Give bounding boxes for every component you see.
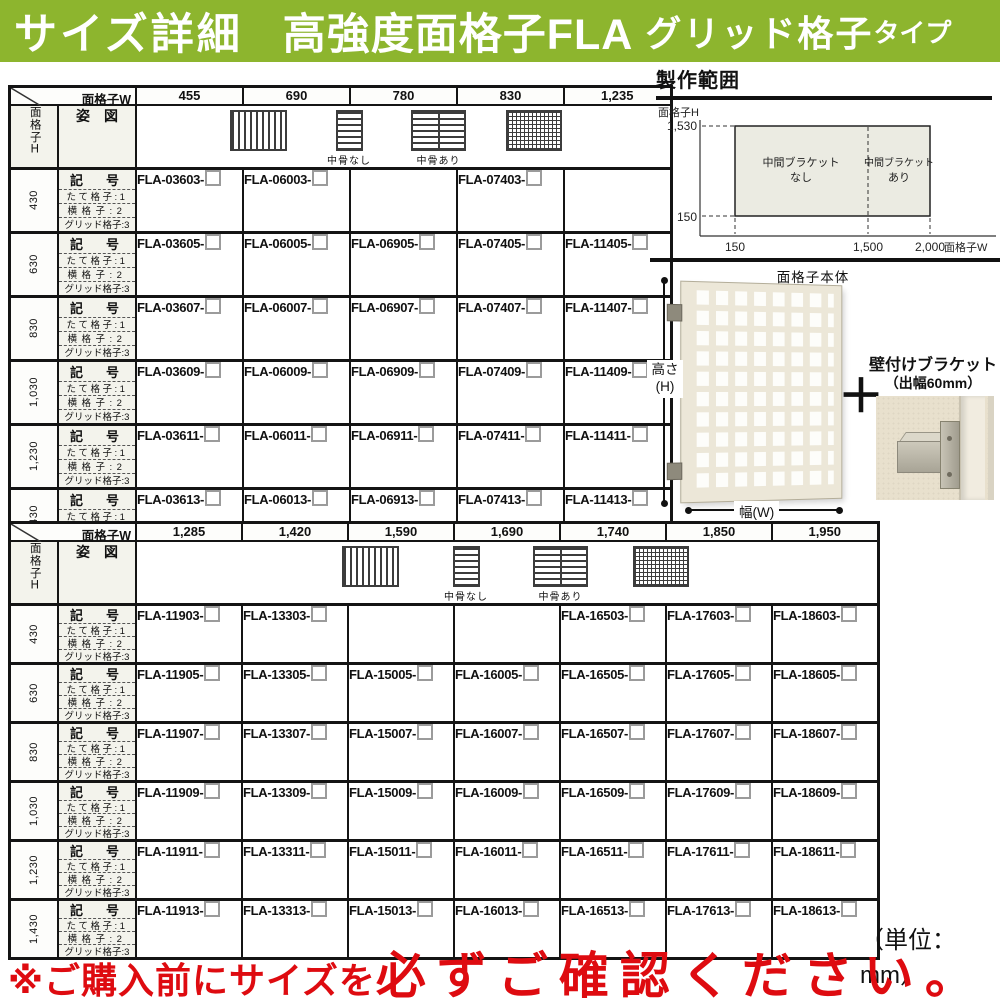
- product-code-cell: FLA-03611-: [136, 424, 243, 488]
- product-code: FLA-16011-: [455, 844, 521, 859]
- color-code-checkbox: [632, 298, 648, 314]
- kigo-label: 記 号: [59, 665, 135, 682]
- production-zone: [735, 126, 930, 216]
- color-code-checkbox: [522, 842, 538, 858]
- lattice-type-label: グリッド格子:3: [59, 217, 135, 231]
- row-height-cell: 430: [10, 604, 59, 663]
- color-code-checkbox: [628, 842, 644, 858]
- product-code-cell: FLA-13307-: [242, 722, 348, 781]
- color-code-checkbox: [417, 901, 433, 917]
- product-code-cell: FLA-16007-: [454, 722, 560, 781]
- product-code: FLA-11409-: [565, 364, 631, 379]
- size-row: 1,030記 号たて格子:1横格子:2グリッド格子:3FLA-11909-FLA…: [10, 781, 879, 840]
- with-midrail-figure: 中骨あり: [411, 106, 466, 167]
- product-code-cell: FLA-18609-: [772, 781, 878, 840]
- lattice-type-label: 横格子:2: [59, 813, 135, 826]
- color-code-checkbox: [632, 426, 648, 442]
- product-code-cell: FLA-03603-: [136, 168, 243, 232]
- product-code: FLA-07411-: [458, 428, 524, 443]
- kigo-label: 記 号: [59, 298, 135, 317]
- product-code: FLA-06909-: [351, 364, 418, 379]
- product-code: FLA-11913-: [137, 903, 203, 918]
- size-table-small-widths: 面格子W4556907808301,235面格子H姿 図中骨なし中骨あり430記…: [8, 85, 673, 554]
- color-code-checkbox: [735, 665, 751, 681]
- row-height-value: 1,230: [28, 854, 40, 884]
- product-code: FLA-03605-: [137, 236, 204, 251]
- product-code: FLA-16007-: [455, 726, 522, 741]
- product-type: グリッド格子: [645, 5, 873, 57]
- warning-emphasis: 必ずご確認ください。: [376, 936, 986, 1008]
- product-code: FLA-13311-: [243, 844, 309, 859]
- color-code-checkbox: [419, 234, 435, 250]
- appearance-row: 面格子H姿 図中骨なし中骨あり: [10, 541, 879, 605]
- appearance-figures-cell: 中骨なし中骨あり: [136, 105, 671, 169]
- product-code: FLA-11411-: [565, 428, 631, 443]
- vertical-lattice-figure: [230, 106, 287, 151]
- width-header: 1,950: [772, 523, 878, 541]
- color-code-checkbox: [205, 298, 221, 314]
- height-label: 高さ: [647, 362, 683, 379]
- product-code: FLA-11907-: [137, 726, 203, 741]
- color-code-checkbox: [205, 362, 221, 378]
- product-code-cell: FLA-11907-: [136, 722, 242, 781]
- product-code-cell: FLA-06009-: [243, 360, 350, 424]
- product-code-cell: FLA-16511-: [560, 840, 666, 899]
- mount-bracket-top: [667, 304, 683, 322]
- gbars-pattern: [506, 110, 562, 151]
- hbars-pattern: [336, 110, 363, 151]
- product-code: FLA-03603-: [137, 172, 204, 187]
- lattice-type-label: 横格子:2: [59, 636, 135, 649]
- product-code-cell: FLA-18611-: [772, 840, 878, 899]
- size-row: 1,230記 号たて格子:1横格子:2グリッド格子:3FLA-11911-FLA…: [10, 840, 879, 899]
- color-code-checkbox: [312, 362, 328, 378]
- product-code-cell: FLA-07405-: [457, 232, 564, 296]
- color-code-checkbox: [312, 298, 328, 314]
- appearance-label: 姿 図: [58, 105, 136, 169]
- color-code-checkbox: [841, 606, 857, 622]
- product-code-cell: FLA-18603-: [772, 604, 878, 663]
- lattice-type-label: たて格子:1: [59, 859, 135, 872]
- product-code-cell: FLA-06003-: [243, 168, 350, 232]
- product-code: FLA-06011-: [244, 428, 310, 443]
- product-code: FLA-13309-: [243, 785, 310, 800]
- grille-illustration: [681, 282, 841, 503]
- size-row: 1,030記 号たて格子:1横格子:2グリッド格子:3FLA-03609-FLA…: [10, 360, 672, 424]
- product-code-cell: FLA-13303-: [242, 604, 348, 663]
- product-code-cell: FLA-16509-: [560, 781, 666, 840]
- corner-cell: 面格子W: [10, 87, 137, 105]
- product-code: FLA-06907-: [351, 300, 418, 315]
- h-axis-label: 面格子H: [28, 106, 40, 157]
- product-code: FLA-17613-: [667, 903, 734, 918]
- color-code-checkbox: [841, 783, 857, 799]
- height-unit: (H): [647, 379, 683, 396]
- zone-right-line1: 中間ブラケット: [864, 156, 934, 169]
- product-code-cell: FLA-16005-: [454, 663, 560, 722]
- row-label-cell: 記 号たて格子:1横格子:2グリッド格子:3: [58, 722, 136, 781]
- y-max-tick: 1,530: [667, 119, 697, 133]
- width-header: 690: [243, 87, 350, 105]
- lattice-type-label: たて格子:1: [59, 741, 135, 754]
- product-code: FLA-06007-: [244, 300, 311, 315]
- color-code-checkbox: [312, 234, 328, 250]
- color-code-checkbox: [735, 724, 751, 740]
- product-code-cell: FLA-06005-: [243, 232, 350, 296]
- product-code: FLA-16013-: [455, 903, 522, 918]
- color-code-checkbox: [417, 724, 433, 740]
- product-code: FLA-07403-: [458, 172, 525, 187]
- color-code-checkbox: [523, 901, 539, 917]
- color-code-checkbox: [204, 842, 220, 858]
- color-code-checkbox: [841, 665, 857, 681]
- product-code-cell: FLA-07407-: [457, 296, 564, 360]
- row-label-cell: 記 号たて格子:1横格子:2グリッド格子:3: [58, 663, 136, 722]
- size-row: 1,230記 号たて格子:1横格子:2グリッド格子:3FLA-03611-FLA…: [10, 424, 672, 488]
- product-code: FLA-13303-: [243, 608, 310, 623]
- product-type-suffix: タイプ: [873, 13, 951, 50]
- figure-caption: 中骨あり: [417, 152, 461, 167]
- lattice-type-label: グリッド格子:3: [59, 409, 135, 423]
- row-label-cell: 記 号たて格子:1横格子:2グリッド格子:3: [58, 168, 136, 232]
- width-header: 830: [457, 87, 564, 105]
- x-axis-label: 面格子W: [944, 240, 988, 254]
- kigo-label: 記 号: [59, 842, 135, 859]
- vbars-pattern: [230, 110, 287, 151]
- product-code: FLA-03607-: [137, 300, 204, 315]
- product-code-cell: FLA-06911-: [350, 424, 457, 488]
- grille-frame-edge2: [988, 396, 994, 500]
- product-code: FLA-07413-: [458, 492, 525, 507]
- color-code-checkbox: [418, 426, 434, 442]
- row-height-value: 1,030: [28, 795, 40, 825]
- row-height-cell: 630: [10, 663, 59, 722]
- product-code: FLA-16511-: [561, 844, 627, 859]
- size-row: 830記 号たて格子:1横格子:2グリッド格子:3FLA-03607-FLA-0…: [10, 296, 672, 360]
- product-code: FLA-07409-: [458, 364, 525, 379]
- color-code-checkbox: [204, 724, 220, 740]
- row-height-value: 630: [28, 683, 40, 703]
- product-code: FLA-06911-: [351, 428, 417, 443]
- vertical-lattice-figure: [342, 542, 399, 587]
- bracket-depth: （出幅60mm）: [866, 375, 1000, 392]
- y-axis-label: 面格子H: [658, 105, 699, 119]
- color-code-checkbox: [632, 234, 648, 250]
- color-code-checkbox: [204, 665, 220, 681]
- row-height-value: 830: [28, 318, 40, 338]
- product-code: FLA-11413-: [565, 492, 631, 507]
- lattice-type-label: 横格子:2: [59, 395, 135, 409]
- color-code-checkbox: [312, 490, 328, 506]
- width-header-row: 面格子W4556907808301,235: [10, 87, 672, 105]
- dimension-dot: [661, 277, 668, 284]
- color-code-checkbox: [311, 901, 327, 917]
- lattice-type-label: たて格子:1: [59, 317, 135, 331]
- row-height-value: 430: [28, 190, 40, 210]
- page-title-bar: サイズ詳細 高強度面格子FLA グリッド格子 タイプ: [0, 0, 1000, 62]
- kigo-label: 記 号: [59, 234, 135, 253]
- color-code-checkbox: [629, 724, 645, 740]
- row-height-cell: 830: [10, 296, 59, 360]
- width-header: 1,740: [560, 523, 666, 541]
- purchase-warning: ※ご購入前にサイズを 必ずご確認ください。: [8, 936, 998, 1008]
- product-code: FLA-11407-: [565, 300, 631, 315]
- lattice-type-label: グリッド格子:3: [59, 281, 135, 295]
- product-code: FLA-06005-: [244, 236, 311, 251]
- row-label-cell: 記 号たて格子:1横格子:2グリッド格子:3: [58, 424, 136, 488]
- kigo-label: 記 号: [59, 490, 135, 509]
- product-code: FLA-07407-: [458, 300, 525, 315]
- w-axis-label: 面格子W: [82, 89, 131, 108]
- product-code-cell: FLA-11911-: [136, 840, 242, 899]
- product-code: FLA-13313-: [243, 903, 310, 918]
- product-code-cell: FLA-07411-: [457, 424, 564, 488]
- h-axis-label: 面格子H: [28, 542, 40, 593]
- size-row: 430記 号たて格子:1横格子:2グリッド格子:3FLA-11903-FLA-1…: [10, 604, 879, 663]
- product-code-cell: [348, 604, 454, 663]
- lattice-type-label: たて格子:1: [59, 189, 135, 203]
- page-title: サイズ詳細: [14, 0, 243, 62]
- lattice-type-label: グリッド格子:3: [59, 826, 135, 839]
- product-code: FLA-11911-: [137, 844, 203, 859]
- product-code-cell: FLA-06909-: [350, 360, 457, 424]
- lattice-type-label: 横格子:2: [59, 459, 135, 473]
- width-header: 1,590: [348, 523, 454, 541]
- w-axis-label: 面格子W: [82, 525, 131, 544]
- mbars-pattern: [411, 110, 466, 151]
- product-code-cell: FLA-07403-: [457, 168, 564, 232]
- size-table-large-widths: 面格子W1,2851,4201,5901,6901,7401,8501,950面…: [8, 521, 880, 960]
- product-code-cell: [454, 604, 560, 663]
- product-code-cell: FLA-13309-: [242, 781, 348, 840]
- color-code-checkbox: [526, 170, 542, 186]
- lattice-type-label: グリッド格子:3: [59, 767, 135, 780]
- product-name: 高強度面格子FLA: [283, 0, 634, 62]
- product-code: FLA-18603-: [773, 608, 840, 623]
- row-label-cell: 記 号たて格子:1横格子:2グリッド格子:3: [58, 296, 136, 360]
- product-code-cell: FLA-13305-: [242, 663, 348, 722]
- product-code-cell: FLA-06007-: [243, 296, 350, 360]
- x-min-tick: 150: [725, 240, 745, 254]
- row-height-value: 430: [28, 624, 40, 644]
- product-code-cell: FLA-16507-: [560, 722, 666, 781]
- row-label-cell: 記 号たて格子:1横格子:2グリッド格子:3: [58, 604, 136, 663]
- kigo-label: 記 号: [59, 170, 135, 189]
- warning-prefix: ※ご購入前にサイズを: [8, 952, 376, 1004]
- appearance-label: 姿 図: [58, 541, 136, 605]
- color-code-checkbox: [205, 234, 221, 250]
- color-code-checkbox: [735, 901, 751, 917]
- no-midrail-figure: 中骨なし: [444, 542, 488, 603]
- row-height-value: 830: [28, 742, 40, 762]
- mbars-pattern: [533, 546, 588, 587]
- row-label-cell: 記 号たて格子:1横格子:2グリッド格子:3: [58, 360, 136, 424]
- width-header: 1,420: [242, 523, 348, 541]
- product-code: FLA-15009-: [349, 785, 416, 800]
- size-row: 430記 号たて格子:1横格子:2グリッド格子:3FLA-03603-FLA-0…: [10, 168, 672, 232]
- color-code-checkbox: [204, 783, 220, 799]
- product-code: FLA-16507-: [561, 726, 628, 741]
- product-code-cell: FLA-11903-: [136, 604, 242, 663]
- product-code-cell: FLA-15005-: [348, 663, 454, 722]
- color-code-checkbox: [523, 783, 539, 799]
- vbars-pattern: [342, 546, 399, 587]
- row-label-cell: 記 号たて格子:1横格子:2グリッド格子:3: [58, 232, 136, 296]
- production-range-title: 製作範囲: [650, 64, 1000, 93]
- wall-bracket-photo: [876, 396, 994, 500]
- product-code-cell: FLA-15011-: [348, 840, 454, 899]
- product-code: FLA-03613-: [137, 492, 204, 507]
- section-divider: [650, 258, 1000, 262]
- kigo-label: 記 号: [59, 783, 135, 800]
- figure-caption: 中骨あり: [539, 588, 583, 603]
- bracket-name: 壁付けブラケット: [866, 356, 1000, 375]
- color-code-checkbox: [311, 724, 327, 740]
- product-code-cell: FLA-07409-: [457, 360, 564, 424]
- gbars-pattern: [633, 546, 689, 587]
- row-height-value: 1,030: [28, 377, 40, 407]
- height-dimension-label: 高さ (H): [647, 360, 683, 398]
- product-code: FLA-17603-: [667, 608, 734, 623]
- appearance-row: 面格子H姿 図中骨なし中骨あり: [10, 105, 672, 169]
- wall-bracket-title: 壁付けブラケット （出幅60mm）: [866, 356, 1000, 392]
- lattice-type-label: グリッド格子:3: [59, 473, 135, 487]
- lattice-type-label: たて格子:1: [59, 918, 135, 931]
- product-code: FLA-15013-: [349, 903, 416, 918]
- color-code-checkbox: [311, 665, 327, 681]
- figure-row: 中骨なし中骨あり: [230, 106, 670, 167]
- color-code-checkbox: [310, 842, 326, 858]
- size-row: 630記 号たて格子:1横格子:2グリッド格子:3FLA-11905-FLA-1…: [10, 663, 879, 722]
- size-spec-sheet: { "colors":{"header_green":"#8db52e","wa…: [0, 0, 1000, 1000]
- grille-frame-edge: [959, 396, 985, 500]
- zone-right-line2: あり: [888, 171, 910, 184]
- product-code: FLA-11405-: [565, 236, 631, 251]
- product-code: FLA-18609-: [773, 785, 840, 800]
- lattice-type-label: 横格子:2: [59, 754, 135, 767]
- color-code-checkbox: [204, 901, 220, 917]
- width-header-row: 面格子W1,2851,4201,5901,6901,7401,8501,950: [10, 523, 879, 541]
- color-code-checkbox: [841, 901, 857, 917]
- corner-cell: 面格子W: [10, 523, 137, 541]
- color-code-checkbox: [526, 234, 542, 250]
- product-code: FLA-13305-: [243, 667, 310, 682]
- product-code: FLA-16503-: [561, 608, 628, 623]
- product-code-cell: FLA-16503-: [560, 604, 666, 663]
- color-code-checkbox: [419, 298, 435, 314]
- product-code: FLA-17611-: [667, 844, 733, 859]
- row-height-cell: 430: [10, 168, 59, 232]
- color-code-checkbox: [523, 665, 539, 681]
- color-code-checkbox: [419, 490, 435, 506]
- color-code-checkbox: [841, 724, 857, 740]
- dimension-dot: [836, 507, 843, 514]
- width-header: 780: [350, 87, 457, 105]
- product-code-cell: FLA-17609-: [666, 781, 772, 840]
- color-code-checkbox: [632, 362, 648, 378]
- color-code-checkbox: [840, 842, 856, 858]
- product-code: FLA-06003-: [244, 172, 311, 187]
- color-code-checkbox: [311, 606, 327, 622]
- color-code-checkbox: [526, 362, 542, 378]
- row-height-cell: 1,230: [10, 840, 59, 899]
- color-code-checkbox: [205, 170, 221, 186]
- lattice-type-label: たて格子:1: [59, 253, 135, 267]
- color-code-checkbox: [735, 783, 751, 799]
- product-code-cell: FLA-11905-: [136, 663, 242, 722]
- x-max-tick: 2,000: [915, 240, 945, 254]
- product-code: FLA-13307-: [243, 726, 310, 741]
- color-code-checkbox: [312, 170, 328, 186]
- lattice-type-label: 横格子:2: [59, 695, 135, 708]
- product-code: FLA-03609-: [137, 364, 204, 379]
- product-code-cell: FLA-16505-: [560, 663, 666, 722]
- product-panel: 面格子本体 高さ (H) 幅(W) ＋ 壁付けブラケット （出幅60mm）: [650, 266, 1000, 514]
- screw-icon: [947, 436, 952, 441]
- product-code: FLA-16009-: [455, 785, 522, 800]
- row-height-value: 630: [28, 254, 40, 274]
- product-code-cell: FLA-13311-: [242, 840, 348, 899]
- screw-icon: [947, 472, 952, 477]
- lattice-type-label: グリッド格子:3: [59, 885, 135, 898]
- color-code-checkbox: [629, 783, 645, 799]
- size-row: 830記 号たて格子:1横格子:2グリッド格子:3FLA-11907-FLA-1…: [10, 722, 879, 781]
- lattice-type-label: 横格子:2: [59, 267, 135, 281]
- mount-bracket-bottom: [667, 462, 683, 480]
- color-code-checkbox: [205, 490, 221, 506]
- row-label-cell: 記 号たて格子:1横格子:2グリッド格子:3: [58, 840, 136, 899]
- width-header: 455: [136, 87, 243, 105]
- product-code: FLA-16505-: [561, 667, 628, 682]
- color-code-checkbox: [417, 783, 433, 799]
- product-code-cell: FLA-18607-: [772, 722, 878, 781]
- color-code-checkbox: [311, 426, 327, 442]
- color-code-checkbox: [525, 426, 541, 442]
- row-height-cell: 1,030: [10, 781, 59, 840]
- product-code: FLA-06905-: [351, 236, 418, 251]
- lattice-type-label: たて格子:1: [59, 682, 135, 695]
- product-code-cell: FLA-17605-: [666, 663, 772, 722]
- dimension-dot: [685, 507, 692, 514]
- lattice-type-label: たて格子:1: [59, 800, 135, 813]
- lattice-type-label: グリッド格子:3: [59, 708, 135, 721]
- color-code-checkbox: [204, 426, 220, 442]
- product-code: FLA-17607-: [667, 726, 734, 741]
- product-code: FLA-18613-: [773, 903, 840, 918]
- product-code-cell: FLA-15007-: [348, 722, 454, 781]
- product-code: FLA-11903-: [137, 608, 203, 623]
- product-code: FLA-15011-: [349, 844, 415, 859]
- color-code-checkbox: [734, 842, 750, 858]
- width-header: 1,690: [454, 523, 560, 541]
- product-code: FLA-06009-: [244, 364, 311, 379]
- color-code-checkbox: [735, 606, 751, 622]
- product-code: FLA-06013-: [244, 492, 311, 507]
- product-code: FLA-18607-: [773, 726, 840, 741]
- product-code: FLA-03611-: [137, 428, 203, 443]
- product-code: FLA-06913-: [351, 492, 418, 507]
- product-code-cell: FLA-03607-: [136, 296, 243, 360]
- production-range-panel: 製作範囲 面格子H 1,530 150 中間ブラケット なし 中間ブラケット あ…: [650, 64, 1000, 260]
- lattice-type-label: 横格子:2: [59, 203, 135, 217]
- product-code-cell: [350, 168, 457, 232]
- h-axis-cell: 面格子H: [10, 105, 59, 169]
- product-code-cell: FLA-16011-: [454, 840, 560, 899]
- product-code: FLA-15007-: [349, 726, 416, 741]
- kigo-label: 記 号: [59, 724, 135, 741]
- kigo-label: 記 号: [59, 426, 135, 445]
- figure-caption: 中骨なし: [444, 588, 488, 603]
